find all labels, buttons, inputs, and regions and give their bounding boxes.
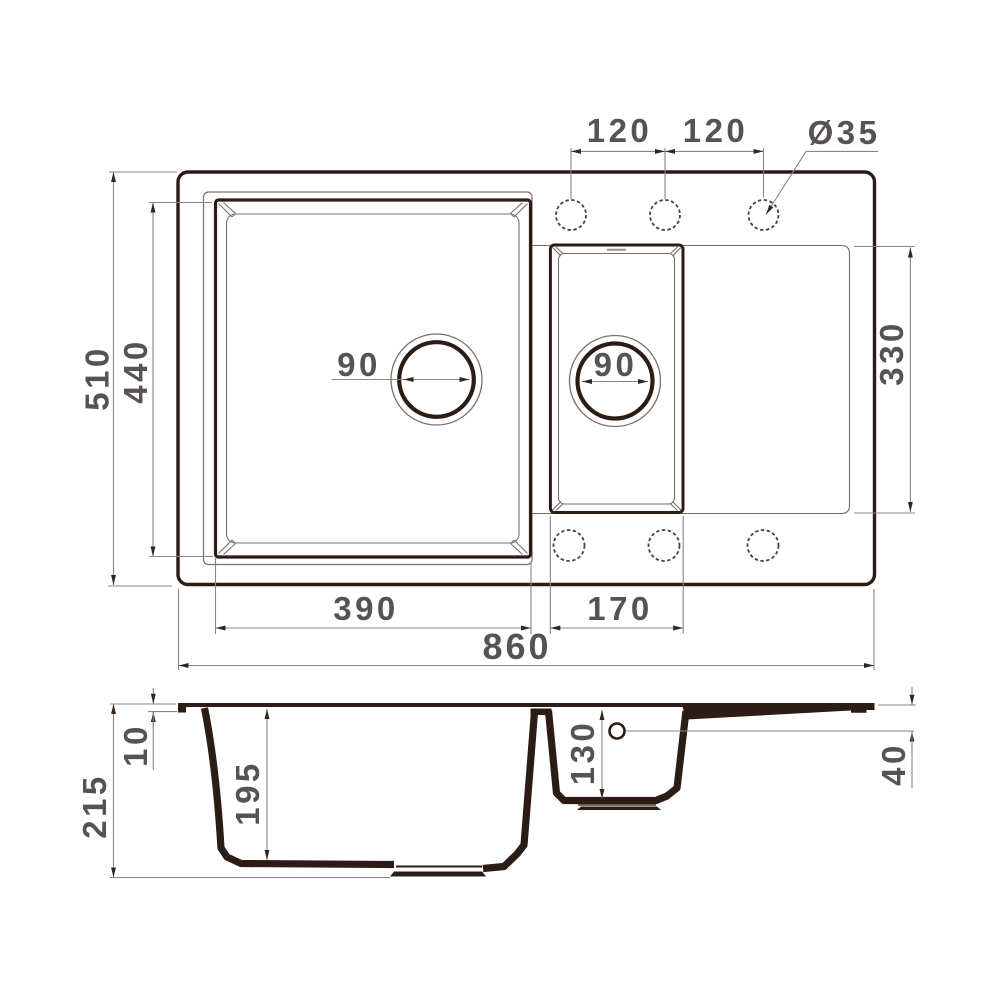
svg-text:440: 440	[117, 338, 154, 404]
svg-text:120: 120	[587, 112, 653, 149]
svg-text:195: 195	[229, 760, 266, 826]
svg-text:215: 215	[76, 773, 113, 839]
svg-text:860: 860	[482, 626, 551, 667]
svg-text:170: 170	[587, 590, 653, 627]
svg-text:120: 120	[683, 112, 749, 149]
svg-text:330: 330	[873, 320, 910, 386]
svg-text:10: 10	[117, 723, 154, 767]
svg-text:130: 130	[564, 720, 601, 786]
svg-text:Ø35: Ø35	[808, 114, 881, 151]
svg-text:390: 390	[333, 590, 399, 627]
svg-text:90: 90	[594, 346, 638, 383]
svg-text:40: 40	[875, 742, 912, 786]
svg-text:510: 510	[79, 345, 116, 411]
svg-text:90: 90	[337, 346, 381, 383]
